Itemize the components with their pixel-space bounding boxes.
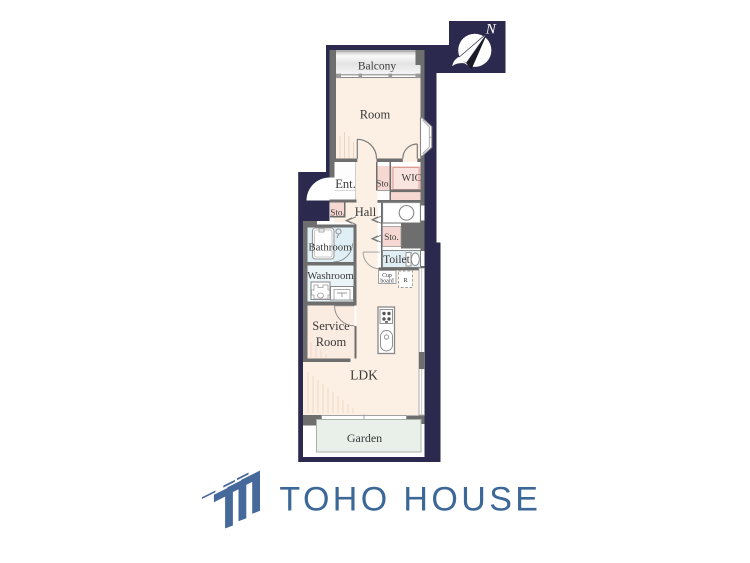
svg-text:Ent.: Ent.	[335, 177, 355, 191]
svg-text:R: R	[403, 277, 408, 284]
svg-text:board: board	[380, 279, 393, 285]
svg-text:LDK: LDK	[350, 368, 378, 383]
svg-text:Room: Room	[316, 335, 347, 349]
svg-text:Garden: Garden	[347, 431, 382, 445]
svg-text:Sto.: Sto.	[376, 178, 391, 188]
svg-text:Toilet: Toilet	[383, 254, 410, 266]
svg-text:Sto.: Sto.	[384, 232, 399, 242]
svg-text:Bathroom: Bathroom	[308, 241, 352, 253]
svg-text:Washroom: Washroom	[307, 270, 354, 282]
svg-text:TOHO HOUSE: TOHO HOUSE	[279, 481, 541, 519]
svg-text:WIC: WIC	[401, 173, 421, 184]
svg-text:N: N	[485, 22, 497, 38]
svg-text:Room: Room	[360, 108, 391, 122]
svg-text:Hall: Hall	[355, 205, 377, 219]
svg-text:Service: Service	[312, 319, 350, 333]
svg-text:Balcony: Balcony	[358, 61, 397, 73]
